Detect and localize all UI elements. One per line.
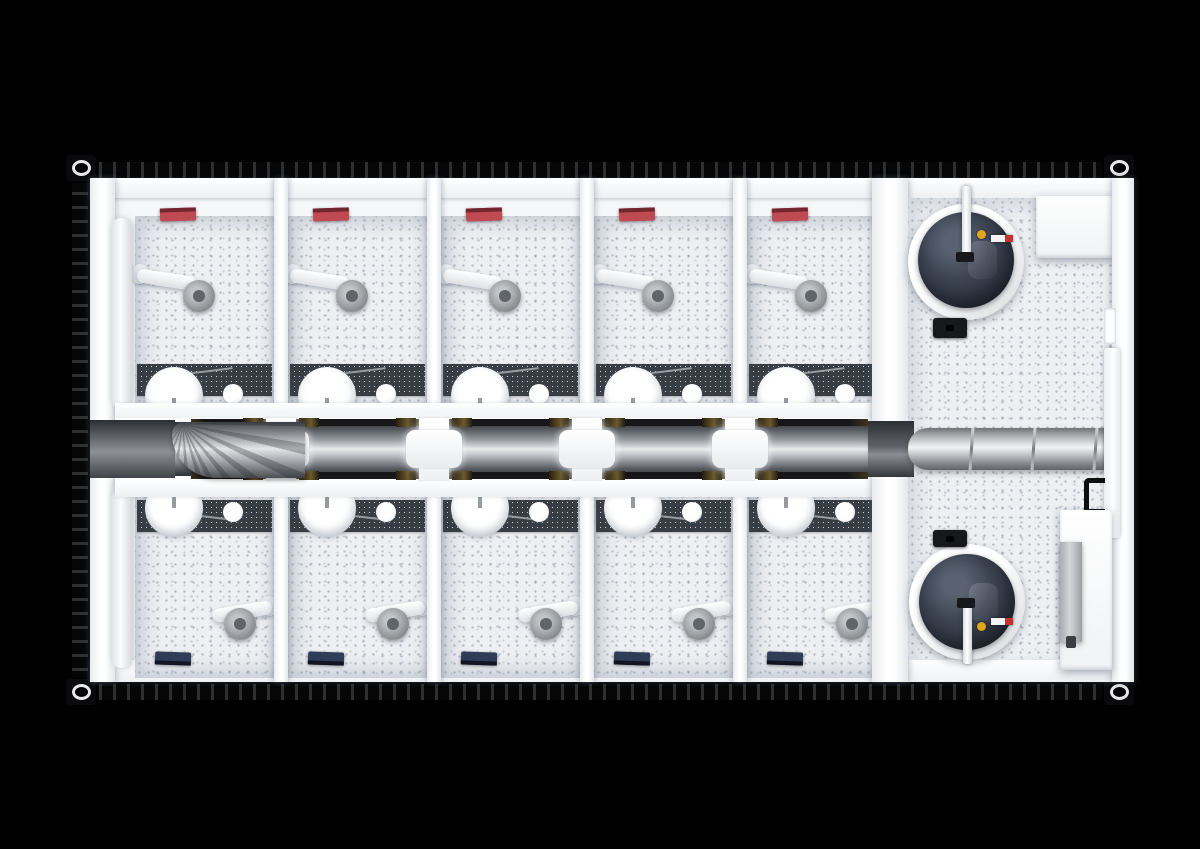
shower-head	[836, 608, 868, 640]
partition-wall	[427, 480, 441, 682]
container-wall-top	[76, 162, 1124, 178]
riser-pipe	[110, 218, 132, 408]
partition-wall	[274, 178, 288, 403]
wall-heater	[461, 651, 497, 665]
duct-elbow	[172, 422, 305, 478]
cut-wall-block	[605, 471, 625, 480]
soap-dispenser	[376, 384, 396, 404]
partition-wall	[580, 178, 594, 403]
boiler-label	[991, 618, 1013, 625]
shower-stall-bottom	[594, 480, 733, 680]
end-wall-top	[90, 178, 1112, 198]
soap-dispenser	[682, 502, 702, 522]
duct-cross-junction-horizontal	[406, 430, 462, 468]
wall-heater-top-band	[772, 207, 808, 212]
pipe-fitting	[957, 598, 975, 608]
pipe-fitting	[956, 252, 974, 262]
boiler-label	[991, 235, 1013, 242]
valve-dot	[977, 230, 986, 239]
shower-head	[489, 280, 521, 312]
electrical-panel-gray-unit	[1060, 542, 1082, 642]
soap-dispenser	[835, 384, 855, 404]
casting-hole-icon	[1110, 684, 1129, 700]
soap-dispenser	[529, 384, 549, 404]
shower-stall-top	[135, 198, 274, 420]
corner-casting-bottom-right	[1104, 679, 1134, 705]
shower-stall-bottom	[441, 480, 580, 680]
shower-stall-top	[594, 198, 733, 420]
cut-wall-block	[702, 418, 722, 427]
shower-head	[183, 280, 215, 312]
container-wall-left	[72, 166, 88, 694]
partition-wall	[274, 480, 288, 682]
shower-stall-top	[288, 198, 427, 420]
wall-heater-top-band	[160, 207, 196, 212]
wall-heater-top-band	[619, 207, 655, 212]
boiler-pipe	[963, 602, 972, 664]
cut-wall-block	[452, 418, 472, 427]
wall-heater	[313, 207, 349, 221]
partition-wall	[580, 480, 594, 682]
round-air-duct	[908, 428, 1112, 470]
wall-heater	[155, 651, 191, 665]
wall-heater	[160, 207, 196, 221]
container-shell	[70, 160, 1130, 700]
shower-head	[683, 608, 715, 640]
casting-hole-icon	[72, 684, 91, 700]
duct-cross-junction-horizontal	[559, 430, 615, 468]
soap-dispenser	[682, 384, 702, 404]
casting-hole-icon	[1110, 160, 1129, 176]
shower-head	[795, 280, 827, 312]
wall-heater	[619, 207, 655, 221]
duct-wall-opening	[90, 420, 175, 478]
boiler-spigot	[933, 530, 967, 547]
corridor-wall-bottom	[115, 480, 872, 497]
shower-stall-top	[747, 198, 886, 420]
riser-pipe	[110, 483, 132, 668]
scene-canvas	[0, 0, 1200, 849]
partition-wall	[733, 480, 747, 682]
wall-heater	[767, 651, 803, 665]
wall-heater	[466, 207, 502, 221]
shower-stall-bottom	[135, 480, 274, 680]
shower-head	[530, 608, 562, 640]
partition-wall	[427, 178, 441, 403]
cut-wall-block	[605, 418, 625, 427]
cut-wall-block	[396, 418, 416, 427]
container-interior	[90, 178, 1112, 682]
wall-heater-top-band	[313, 207, 349, 212]
valve-dot	[977, 622, 986, 631]
shower-head	[642, 280, 674, 312]
door-recess	[1104, 308, 1116, 344]
duct-cross-junction-horizontal	[712, 430, 768, 468]
cut-wall-block	[549, 418, 569, 427]
casting-hole-icon	[72, 160, 91, 176]
cut-wall-block	[702, 471, 722, 480]
shower-stall-bottom	[288, 480, 427, 680]
wall-heater	[772, 207, 808, 221]
soap-dispenser	[376, 502, 396, 522]
cut-wall-block	[452, 471, 472, 480]
cut-wall-block	[758, 471, 778, 480]
shower-head	[377, 608, 409, 640]
wall-heater	[614, 651, 650, 665]
soap-dispenser	[223, 502, 243, 522]
shower-head	[224, 608, 256, 640]
soap-dispenser	[529, 502, 549, 522]
door-handle-icon	[1084, 478, 1105, 514]
panel-connector	[1066, 636, 1076, 648]
container-wall-bottom	[76, 684, 1124, 700]
boiler-pipe	[962, 186, 971, 262]
cut-wall-block	[396, 471, 416, 480]
shower-stall-bottom	[747, 480, 886, 680]
wall-heater-top-band	[466, 207, 502, 212]
storage-cabinet	[1036, 196, 1114, 258]
wall-heater	[308, 651, 344, 665]
cut-wall-block	[758, 418, 778, 427]
shower-stall-top	[441, 198, 580, 420]
corner-casting-bottom-left	[66, 679, 96, 705]
shower-head	[336, 280, 368, 312]
partition-wall	[733, 178, 747, 403]
cut-wall-block	[549, 471, 569, 480]
boiler-spigot	[933, 318, 967, 338]
soap-dispenser	[223, 384, 243, 404]
soap-dispenser	[835, 502, 855, 522]
